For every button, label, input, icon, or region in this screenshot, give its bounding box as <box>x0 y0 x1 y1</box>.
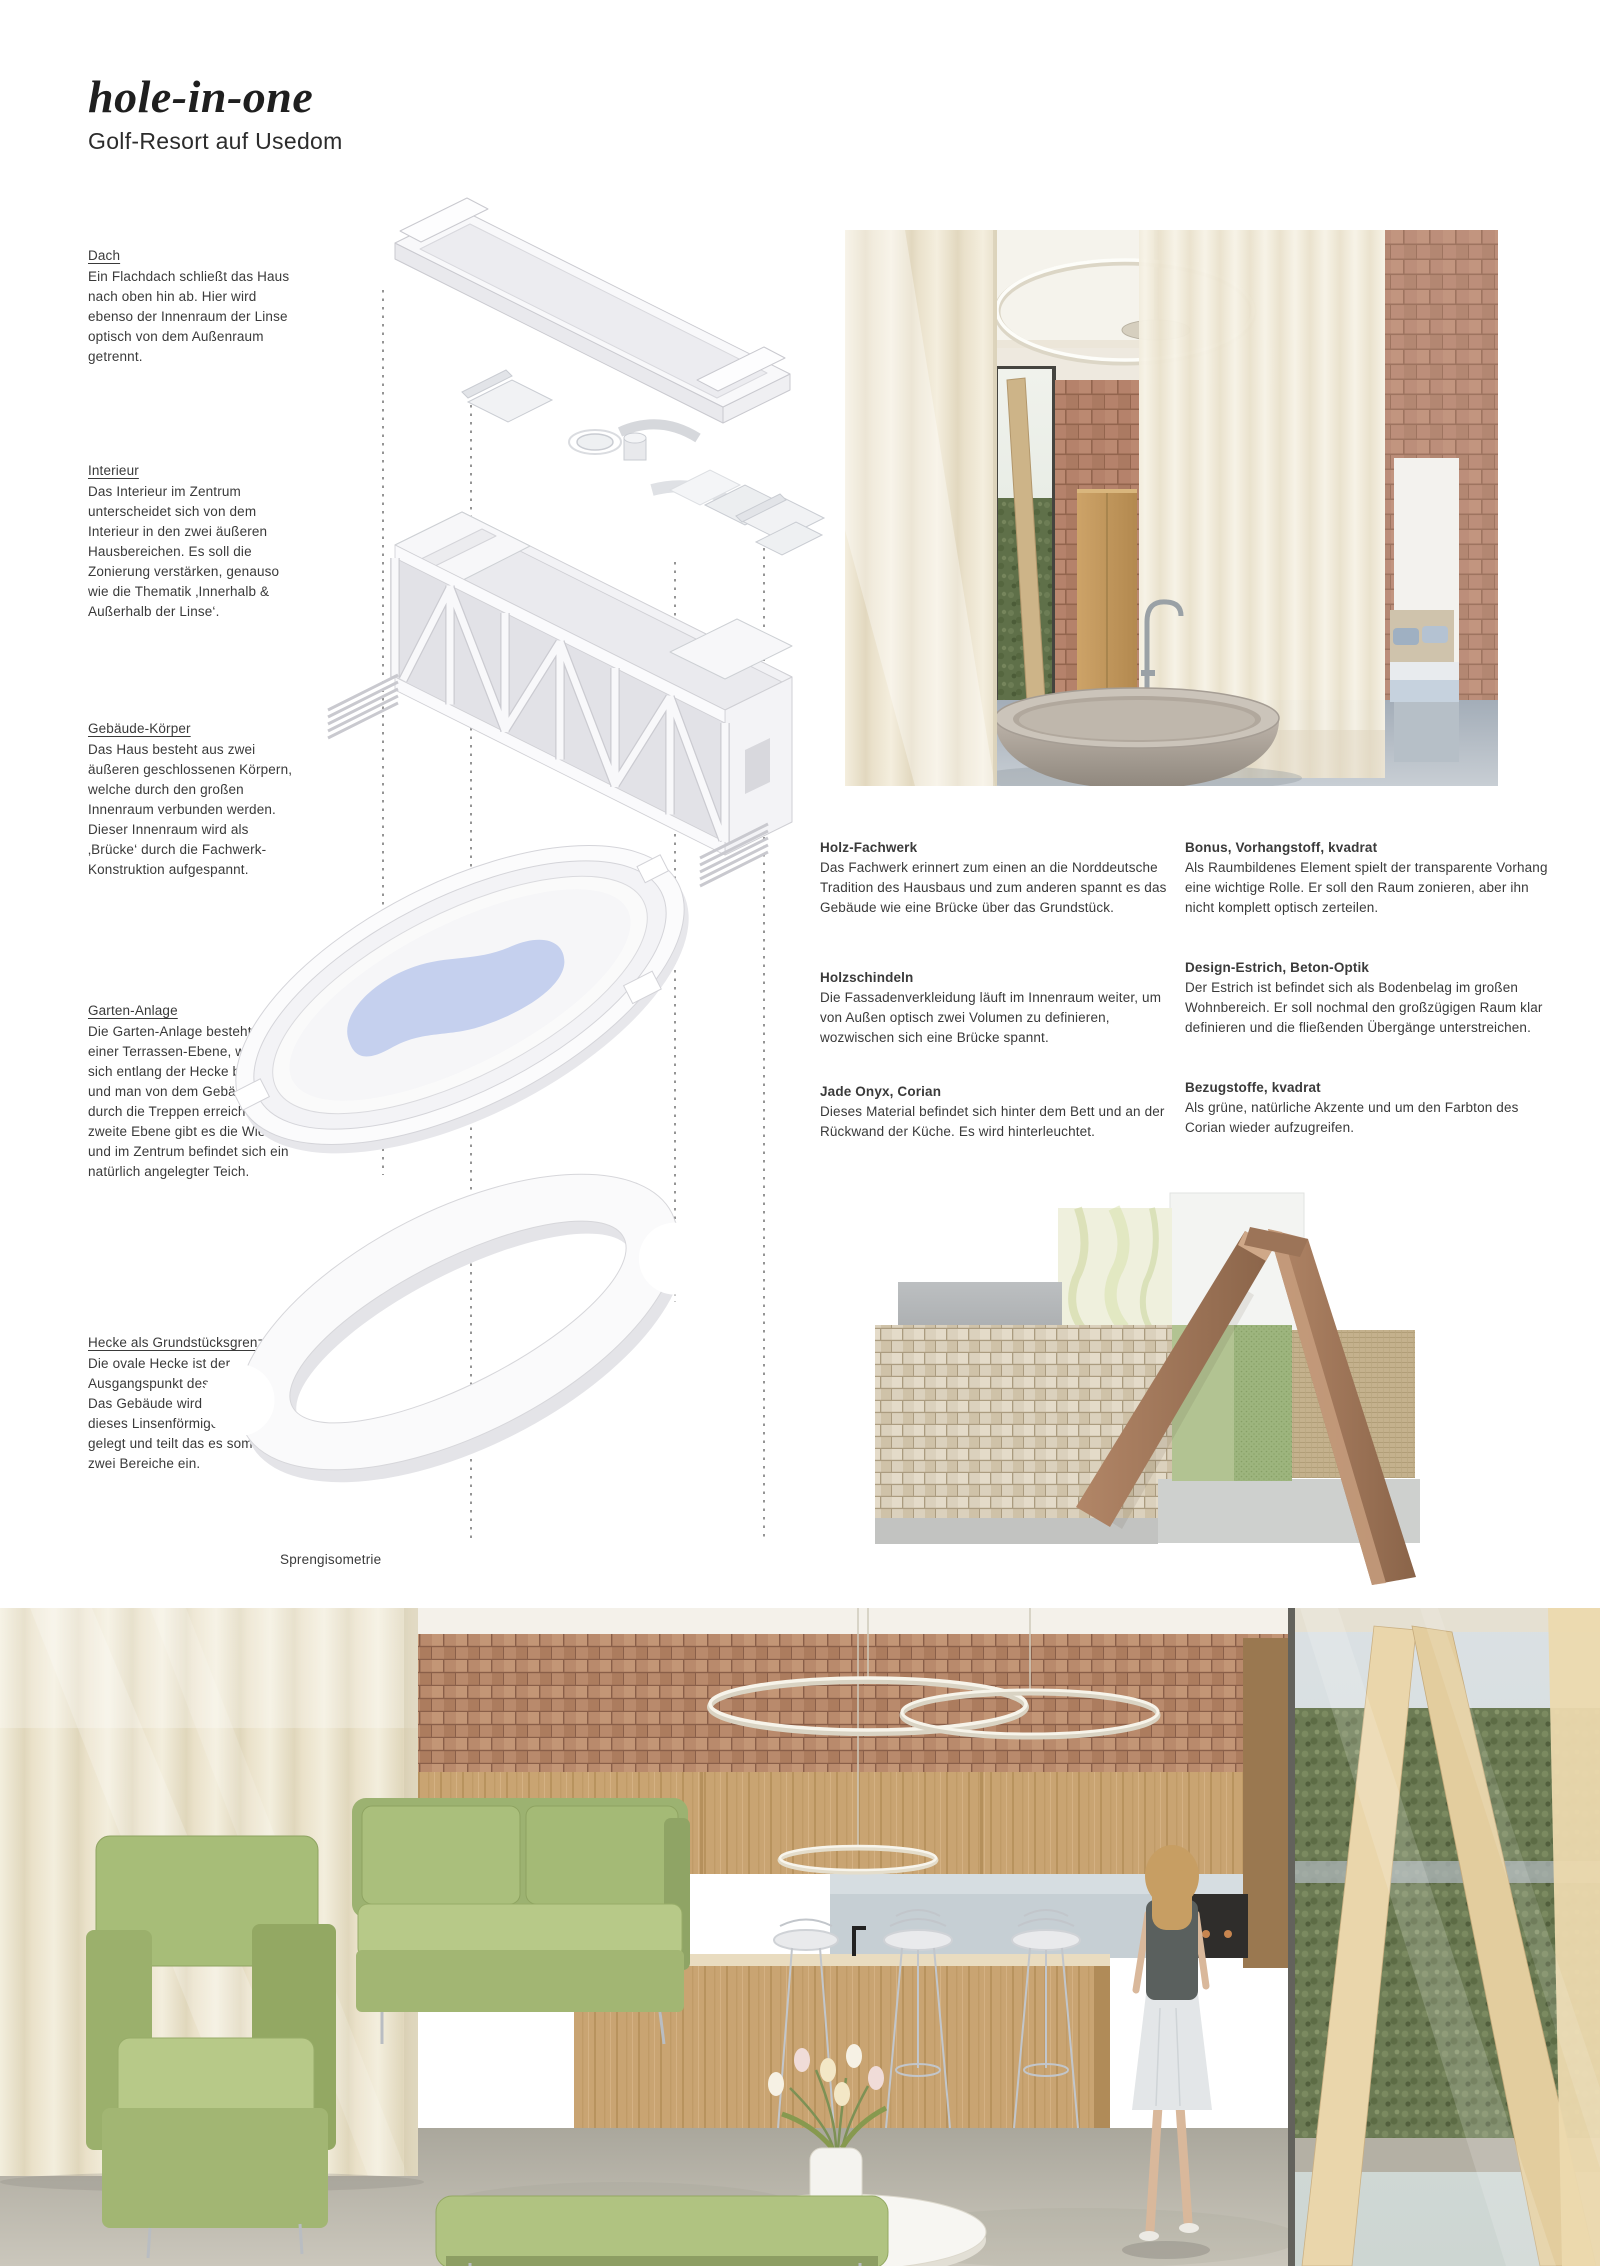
ottoman <box>436 2196 888 2266</box>
wood-cabinet <box>1243 1638 1292 1968</box>
material-heading: Bezugstoffe, kvadrat <box>1185 1078 1557 1098</box>
page-subtitle: Golf-Resort auf Usedom <box>88 128 343 155</box>
material-note-estrich: Design-Estrich, Beton-Optik Der Estrich … <box>1185 958 1557 1038</box>
material-note-jade-onyx: Jade Onyx, Corian Dieses Material befind… <box>820 1082 1186 1142</box>
material-body: Als Raumbildenes Element spielt der tran… <box>1185 858 1557 918</box>
glass-wall <box>1288 1608 1600 2266</box>
window-mullion <box>1288 1608 1295 2266</box>
blanket <box>1390 680 1459 702</box>
material-heading: Design-Estrich, Beton-Optik <box>1185 958 1557 978</box>
material-note-bezugstoffe: Bezugstoffe, kvadrat Als grüne, natürlic… <box>1185 1078 1557 1138</box>
header: hole-in-one Golf-Resort auf Usedom <box>88 74 343 155</box>
material-body: Als grüne, natürliche Akzente und um den… <box>1185 1098 1557 1138</box>
material-note-holzschindeln: Holzschindeln Die Fassadenverkleidung lä… <box>820 968 1186 1048</box>
isometric-caption: Sprengisometrie <box>280 1552 381 1567</box>
building-body <box>328 512 792 886</box>
exploded-isometric-drawing <box>200 190 840 1580</box>
material-body: Dieses Material befindet sich hinter dem… <box>820 1102 1186 1142</box>
material-body: Das Fachwerk erinnert zum einen an die N… <box>820 858 1186 918</box>
interior-render <box>0 1608 1600 2266</box>
material-heading: Holz-Fachwerk <box>820 838 1186 858</box>
armchair <box>86 1836 336 2258</box>
bathroom-render-image <box>845 230 1498 786</box>
swatch-jade-onyx <box>1058 1208 1172 1328</box>
sofa <box>352 1798 690 2044</box>
material-body: Die Fassadenverkleidung läuft im Innenra… <box>820 988 1186 1048</box>
page-title: hole-in-one <box>88 74 343 120</box>
pillow <box>1393 628 1419 645</box>
kitchen-faucet <box>852 1926 856 1956</box>
material-heading: Bonus, Vorhangstoff, kvadrat <box>1185 838 1557 858</box>
moodboard-collage <box>870 1185 1430 1585</box>
interior-render-image <box>0 1608 1600 2266</box>
garden-plane <box>200 784 734 1215</box>
window <box>994 366 1056 706</box>
shingle-wall <box>380 1634 1292 1772</box>
material-moodboard <box>870 1185 1430 1585</box>
pillow <box>1422 626 1448 643</box>
material-heading: Holzschindeln <box>820 968 1186 988</box>
hedge-ring <box>200 1105 745 1555</box>
exploded-isometric-figure <box>200 190 840 1580</box>
material-note-vorhangstoff: Bonus, Vorhangstoff, kvadrat Als Raumbil… <box>1185 838 1557 918</box>
skirt <box>1132 1994 1212 2110</box>
material-body: Der Estrich ist befindet sich als Bodenb… <box>1185 978 1557 1038</box>
swatch-concrete <box>898 1282 1062 1330</box>
brick-wall-right <box>1385 230 1498 762</box>
presentation-board: hole-in-one Golf-Resort auf Usedom Dach … <box>0 0 1600 2266</box>
swatch-fabric-green <box>1234 1325 1292 1481</box>
curtain-left <box>845 230 997 786</box>
material-note-holz-fachwerk: Holz-Fachwerk Das Fachwerk erinnert zum … <box>820 838 1186 918</box>
bathroom-render <box>845 230 1498 786</box>
roof-slab <box>395 198 790 423</box>
material-heading: Jade Onyx, Corian <box>820 1082 1186 1102</box>
